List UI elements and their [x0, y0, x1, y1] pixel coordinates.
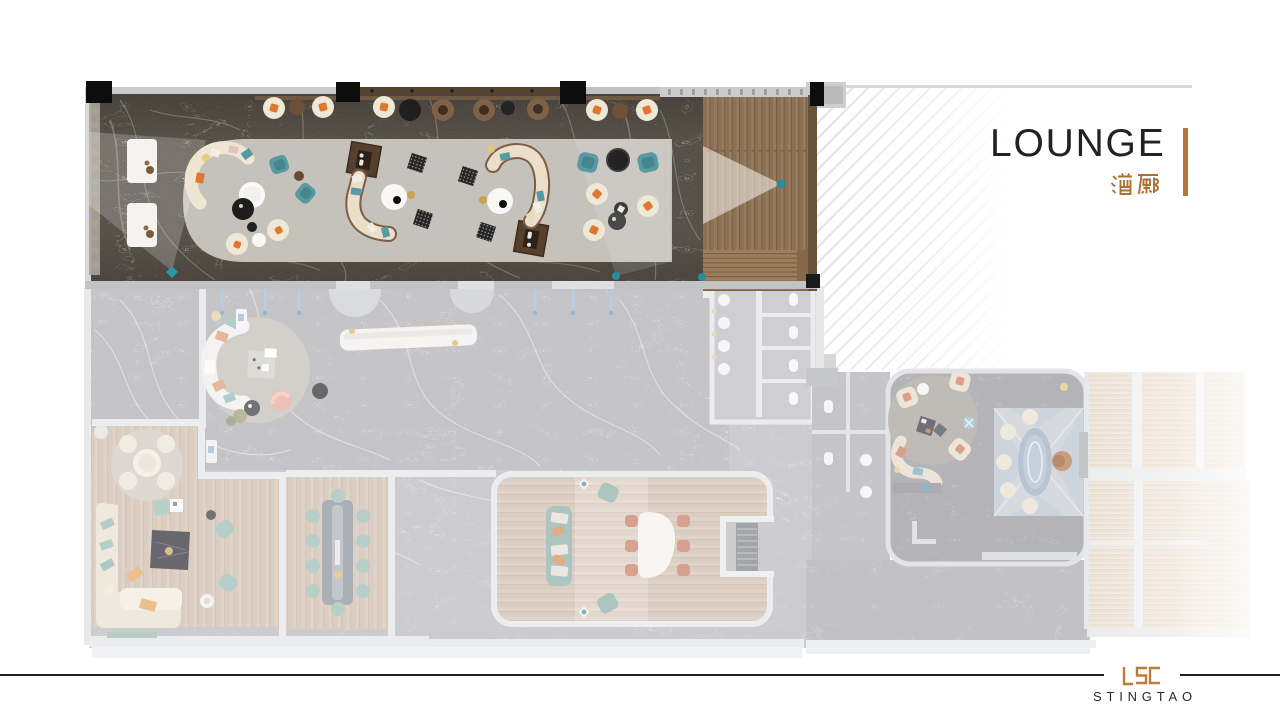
svg-text:STINGTAO: STINGTAO — [1093, 689, 1197, 704]
svg-text:LOUNGE: LOUNGE — [990, 122, 1166, 165]
